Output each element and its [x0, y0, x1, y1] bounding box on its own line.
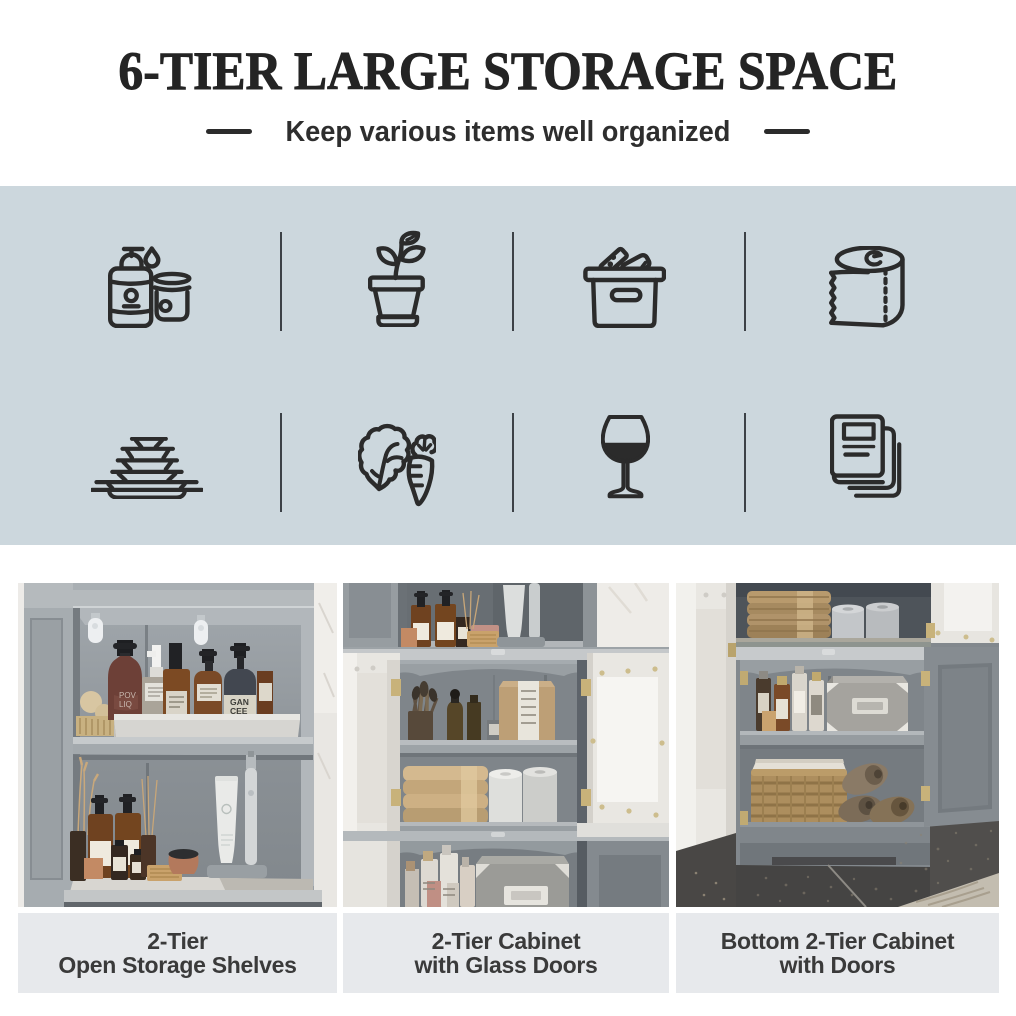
- svg-text:LIQ: LIQ: [119, 700, 132, 709]
- svg-text:POV: POV: [119, 691, 137, 700]
